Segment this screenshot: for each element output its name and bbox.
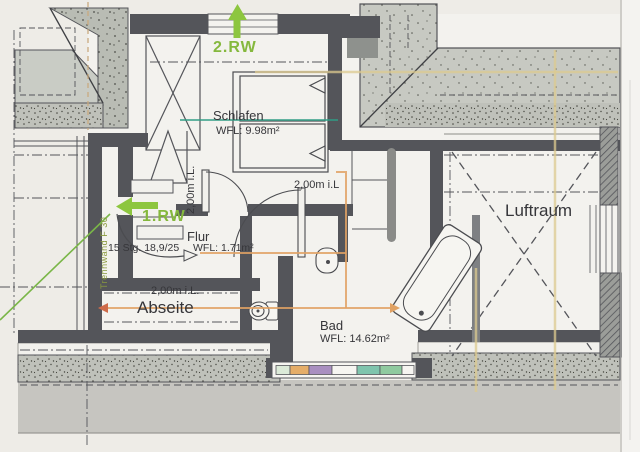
escape-route-2-label: 2.RW [213,40,257,56]
shower-partition [387,148,396,242]
window-bad-south [272,362,416,378]
floorplan-page: Schlafen WFL: 9.98m² 2,00m i.L 2,00m i.L… [0,0,640,452]
wall-bedroom-north-right [278,14,350,34]
clearance-schlafen: 2,00m i.L [294,180,339,191]
wall-luftraum-east-upper [600,127,618,205]
wall-west-connector [88,133,148,147]
clearance-schlafen-vertical: 2,00m i.L. [186,166,197,214]
room-area-schlafen: WFL: 9.98m² [216,126,280,137]
wall-bad-west [278,256,293,345]
wall-south-left [18,330,293,343]
clearance-abseite: 2,00m i.L. [151,286,199,297]
washbasin [316,248,338,273]
room-area-flur: WFL: 1.71m² [193,243,254,254]
room-area-bad: WFL: 14.62m² [320,334,390,345]
wall-luftraum-east-lower [600,273,622,357]
escape-route-1-label: 1.RW [142,209,186,225]
concrete-band-left [18,355,280,382]
partition-wall-label: Trennwand F 30 [100,217,109,289]
room-label-schlafen: Schlafen [213,109,264,122]
room-label-luftraum: Luftraum [505,202,572,219]
floorplan-drawing [0,0,640,452]
wall-south-right [418,330,600,342]
concrete-band-right [412,353,620,380]
stair-note: 15 Stg. 18,9/25 [108,243,179,254]
toilet [249,302,278,320]
room-label-abseite: Abseite [137,299,194,316]
wall-bedroom-east [328,34,342,150]
room-label-bad: Bad [320,319,343,332]
paper-edge [621,0,640,452]
wall-luftraum-north [330,140,620,151]
wall-bedroom-north-left [130,14,208,34]
terrace-slab [18,380,620,433]
